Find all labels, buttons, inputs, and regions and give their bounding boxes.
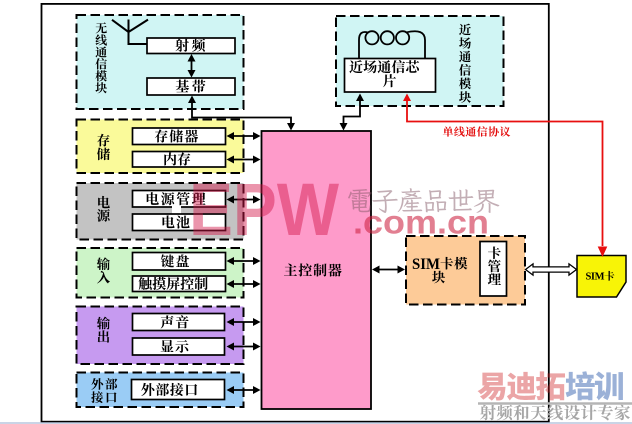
svg-text:.com.cn: .com.cn <box>353 204 489 241</box>
svg-text:SIM: SIM <box>412 256 440 273</box>
svg-text:SIM: SIM <box>586 272 605 283</box>
svg-text:EPW: EPW <box>189 168 339 251</box>
